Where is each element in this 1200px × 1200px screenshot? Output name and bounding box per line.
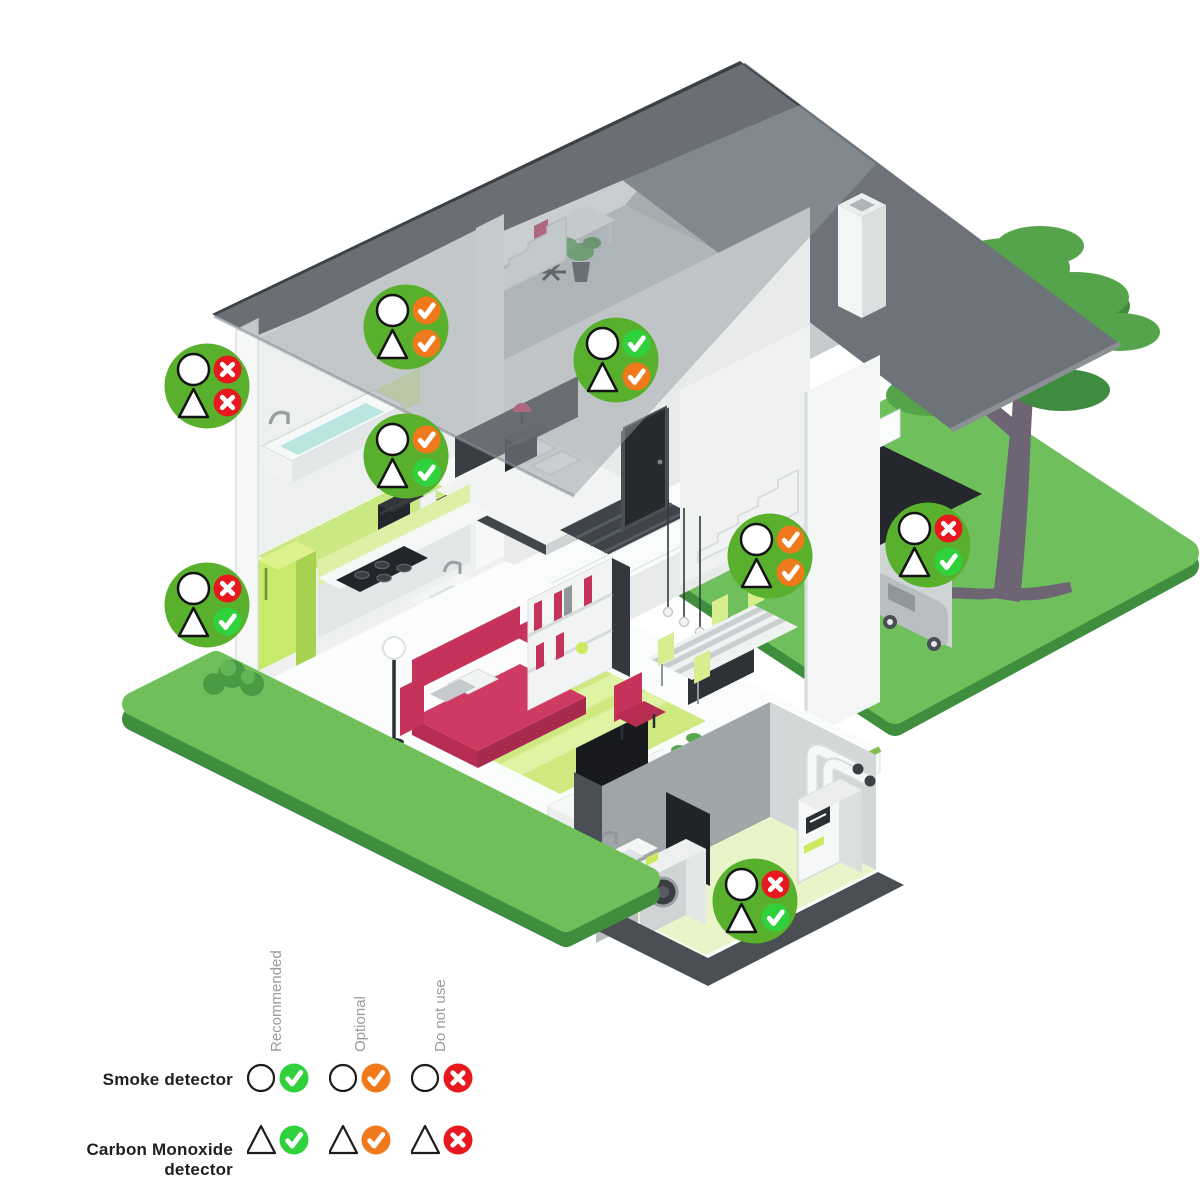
status-cross-icon [214, 356, 242, 384]
smoke-detector-symbol [330, 1065, 356, 1091]
smoke-detector-symbol [178, 573, 209, 604]
detector-marker-kitchen [164, 562, 250, 648]
status-cross-icon [214, 575, 242, 603]
status-cross-icon [762, 871, 790, 899]
illustration-canvas: Recommended Optional Do not use Smoke de… [0, 0, 1200, 1200]
status-check-icon [623, 363, 651, 391]
status-check-icon [413, 297, 441, 325]
legend-cell-co-do_not_use [411, 1120, 477, 1160]
legend-row-co-detector: Carbon Monoxide detector [18, 1140, 233, 1180]
co-detector-symbol [329, 1126, 357, 1153]
legend-column-recommended: Recommended [268, 938, 288, 1052]
smoke-detector-symbol [412, 1065, 438, 1091]
status-cross-icon [214, 389, 242, 417]
status-check-icon [777, 526, 805, 554]
status-check-icon [413, 426, 441, 454]
legend-cell-co-optional [329, 1120, 395, 1160]
status-check-icon [362, 1126, 391, 1155]
legend-column-do-not-use: Do not use [432, 938, 452, 1052]
status-check-icon [935, 548, 963, 576]
status-check-icon [777, 559, 805, 587]
smoke-detector-symbol [587, 328, 618, 359]
status-cross-icon [444, 1126, 473, 1155]
smoke-detector-symbol [741, 524, 772, 555]
status-check-icon [362, 1064, 391, 1093]
detector-marker-bedroom [363, 413, 449, 499]
detector-marker-basement [712, 858, 798, 944]
status-cross-icon [935, 515, 963, 543]
legend-row-smoke-detector: Smoke detector [18, 1070, 233, 1090]
legend-column-optional: Optional [352, 938, 372, 1052]
status-check-icon [762, 904, 790, 932]
detector-marker-hallway [727, 513, 813, 599]
detector-marker-garage [885, 502, 971, 588]
legend-cell-smoke-optional [329, 1058, 395, 1098]
legend-cell-co-recommended [247, 1120, 313, 1160]
status-check-icon [280, 1064, 309, 1093]
smoke-detector-symbol [178, 354, 209, 385]
legend-cell-smoke-do_not_use [411, 1058, 477, 1098]
smoke-detector-symbol [377, 424, 408, 455]
smoke-detector-symbol [248, 1065, 274, 1091]
detector-marker-upstairs-landing [573, 317, 659, 403]
legend-cell-smoke-recommended [247, 1058, 313, 1098]
status-check-icon [413, 459, 441, 487]
detector-marker-bathroom [164, 343, 250, 429]
co-detector-symbol [247, 1126, 275, 1153]
status-check-icon [623, 330, 651, 358]
co-detector-symbol [411, 1126, 439, 1153]
status-check-icon [214, 608, 242, 636]
smoke-detector-symbol [377, 295, 408, 326]
status-cross-icon [444, 1064, 473, 1093]
detector-marker-attic [363, 284, 449, 370]
smoke-detector-symbol [899, 513, 930, 544]
markers-layer [0, 0, 1200, 1200]
status-check-icon [280, 1126, 309, 1155]
status-check-icon [413, 330, 441, 358]
smoke-detector-symbol [726, 869, 757, 900]
